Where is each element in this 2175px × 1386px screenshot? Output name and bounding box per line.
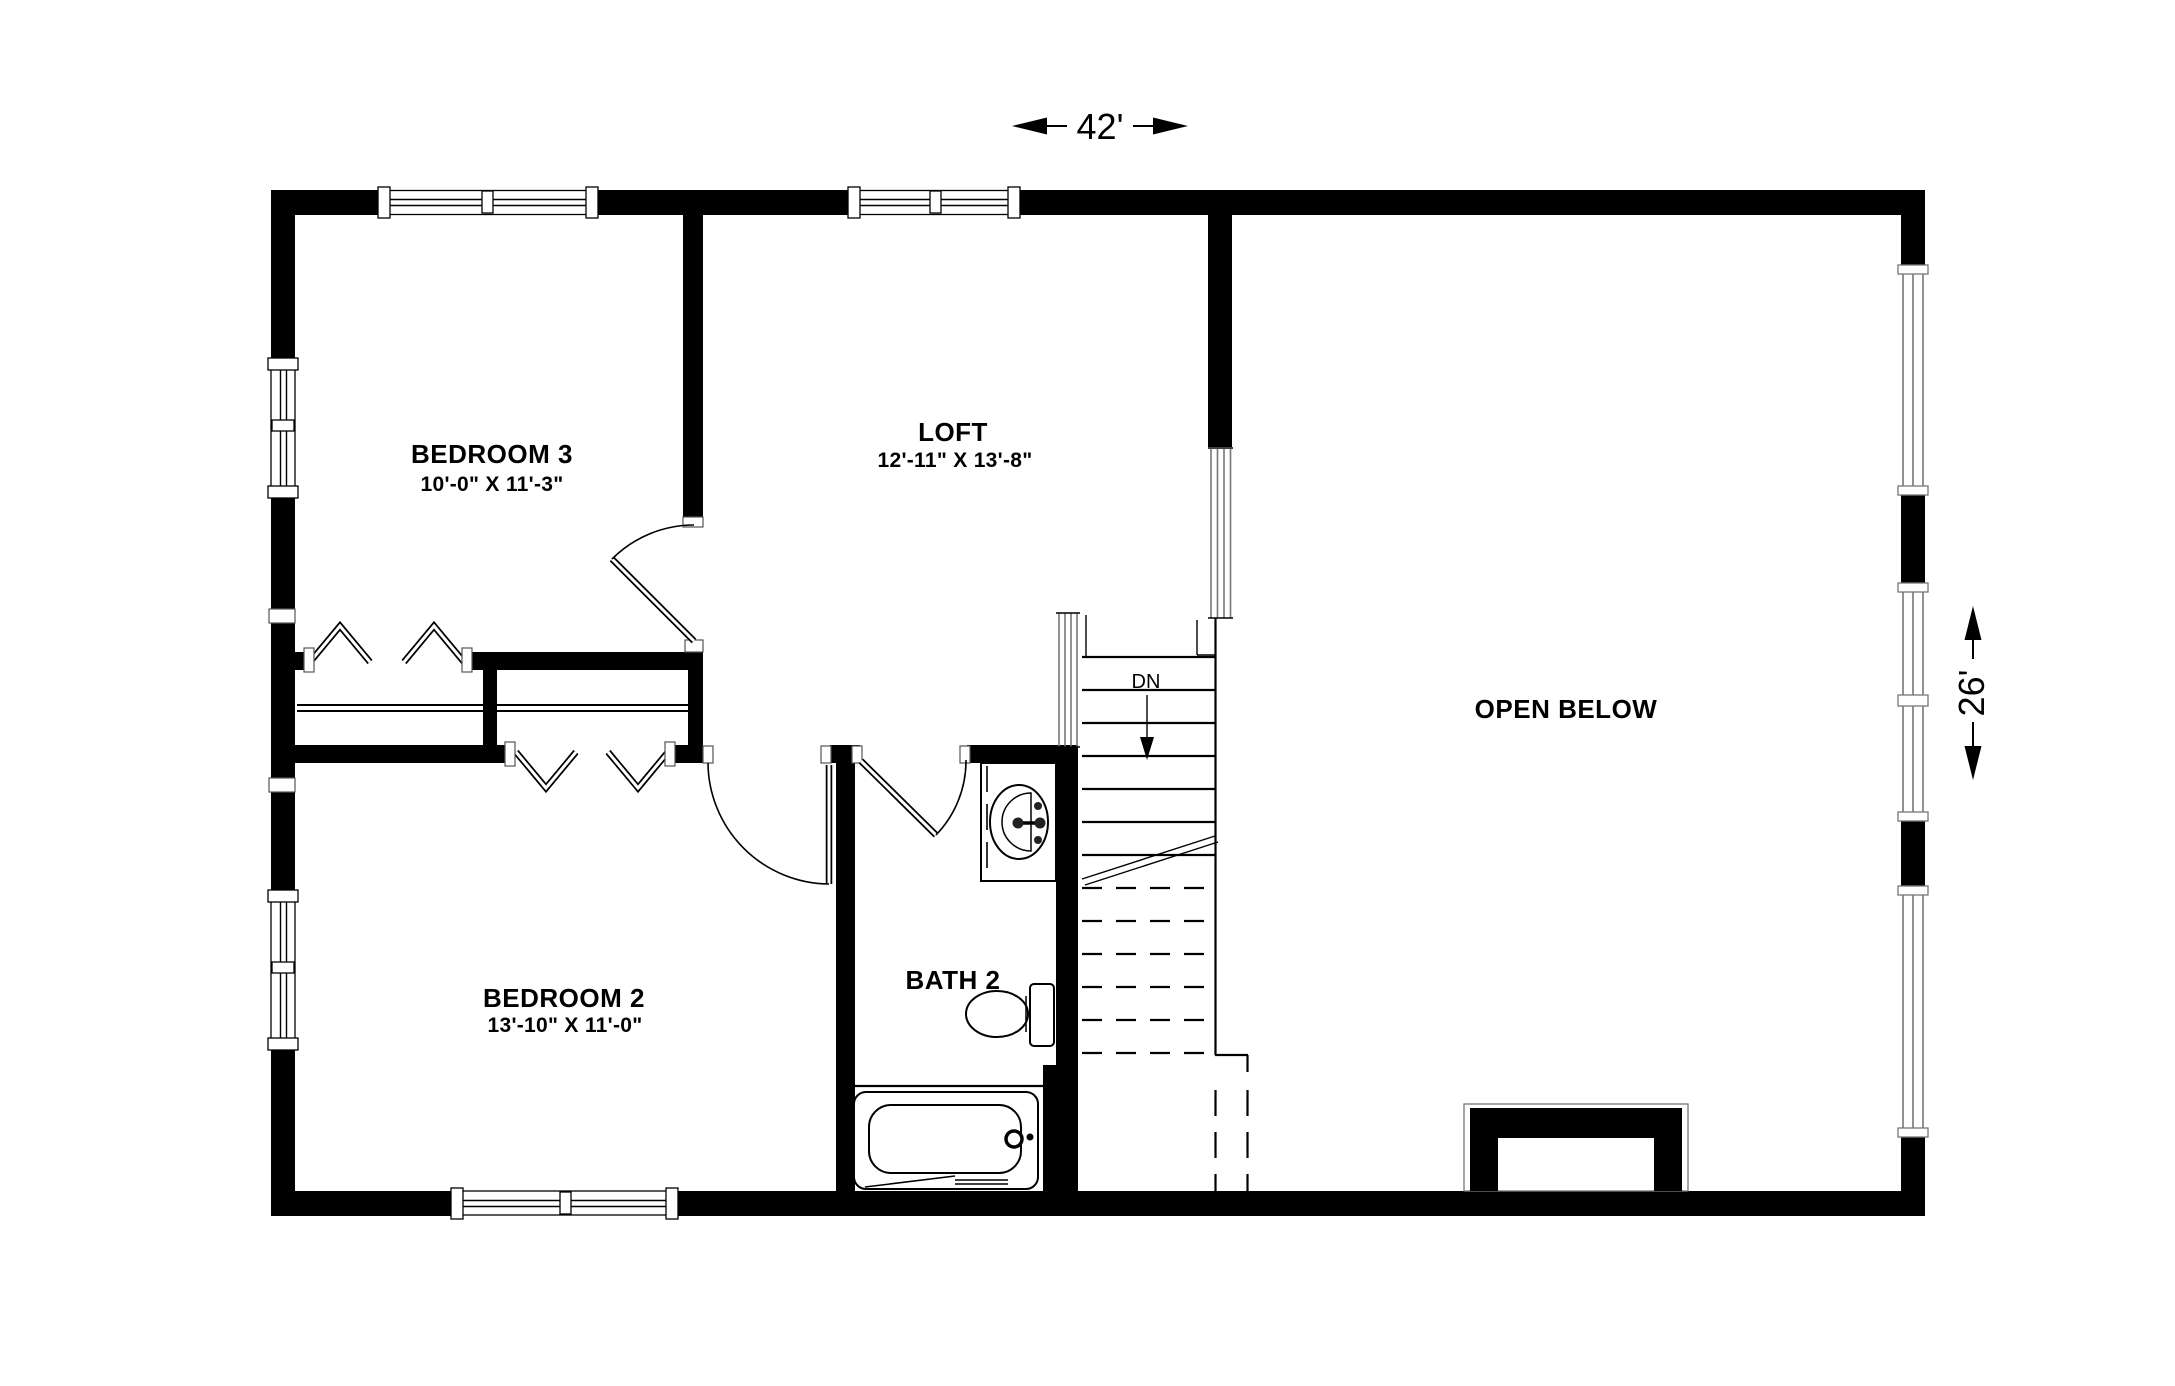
closet-bedroom3 [297, 626, 483, 708]
floor-plan-svg: BEDROOM 3 10'-0" X 11'-3" LOFT 12'-11" X… [0, 0, 2175, 1386]
dim-arrow-right-icon [1153, 118, 1188, 135]
width-dimension-label: 42' [1077, 106, 1124, 147]
window-left-bedroom2 [268, 890, 298, 1050]
exterior-walls [271, 190, 1925, 1216]
vanity-sink-fixture [981, 763, 1056, 881]
window-right-middle [1898, 583, 1928, 821]
dim-arrow-down-icon [1965, 746, 1982, 780]
bedroom2-label: BEDROOM 2 [483, 983, 645, 1013]
bathtub-fixture [843, 1086, 1043, 1189]
bedroom2-size: 13'-10" X 11'-0" [488, 1014, 643, 1037]
floor-plan: BEDROOM 3 10'-0" X 11'-3" LOFT 12'-11" X… [0, 0, 2175, 1386]
dim-arrow-up-icon [1965, 606, 1982, 640]
loft-label: LOFT [918, 417, 988, 447]
open-below-label: OPEN BELOW [1475, 694, 1658, 724]
door-bedroom2 [703, 746, 831, 884]
closet-bedroom2 [497, 708, 688, 788]
window-bottom-bedroom2 [451, 1188, 678, 1219]
left-wall-jamb-lower [269, 778, 295, 792]
room-labels: BEDROOM 3 10'-0" X 11'-3" LOFT 12'-11" X… [411, 417, 1657, 1037]
bedroom3-label: BEDROOM 3 [411, 439, 573, 469]
window-top-bedroom3 [378, 187, 598, 218]
height-dimension-label: 26' [1951, 670, 1992, 717]
door-bedroom3 [612, 517, 703, 652]
width-dimension: 42' [1012, 106, 1188, 147]
window-right-lower [1898, 886, 1928, 1137]
dim-arrow-left-icon [1012, 118, 1047, 135]
fireplace [1464, 1104, 1688, 1191]
interior-walls [295, 215, 1232, 1191]
window-top-loft [848, 187, 1020, 218]
down-arrow-icon [1140, 695, 1154, 760]
window-right-upper [1898, 265, 1928, 495]
bedroom3-size: 10'-0" X 11'-3" [421, 473, 564, 496]
stairs-dn-label: DN [1132, 671, 1161, 693]
stair-railing [1056, 613, 1080, 747]
loft-size: 12'-11" X 13'-8" [878, 449, 1033, 472]
door-bath2 [852, 746, 970, 835]
bath2-label: BATH 2 [906, 965, 1001, 995]
staircase [1082, 615, 1248, 1191]
window-left-bedroom3 [268, 358, 298, 498]
left-wall-jamb-upper [269, 609, 295, 623]
height-dimension: 26' [1951, 606, 1992, 780]
